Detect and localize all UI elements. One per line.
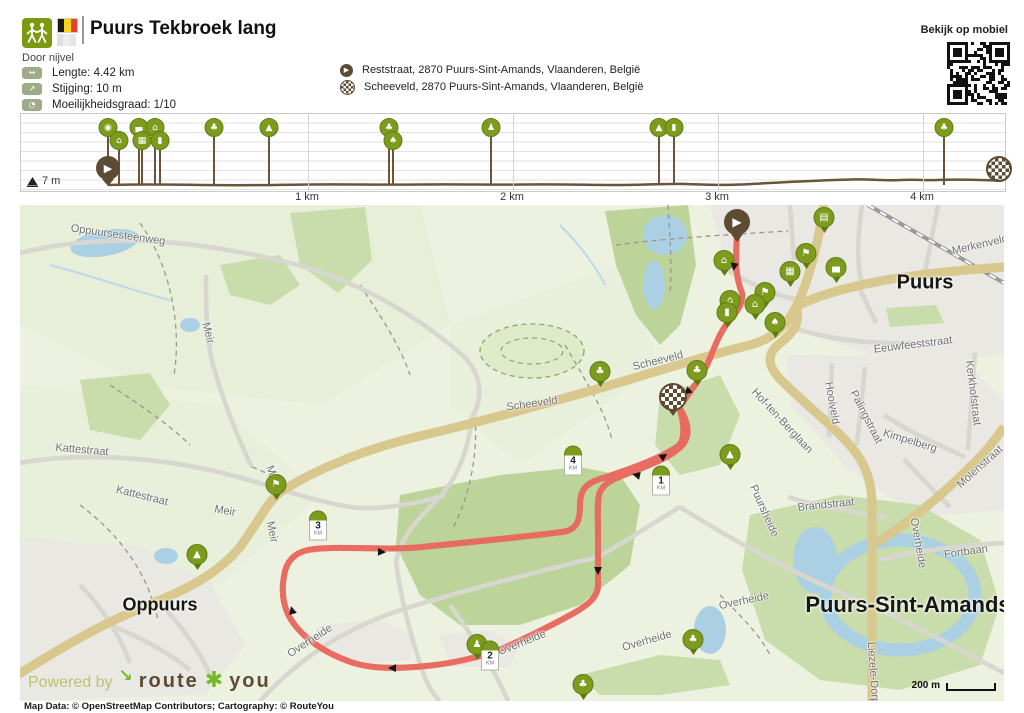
town-label: Puurs-Sint-Amands: [805, 592, 1004, 618]
km-gridline: [308, 114, 309, 191]
tree-poi-icon[interactable]: ♣: [683, 629, 704, 650]
house-icon[interactable]: ⌂: [110, 131, 129, 150]
marker-stem: [268, 133, 270, 185]
plant-icon[interactable]: ♠: [384, 131, 403, 150]
scale-label: 200 m: [912, 680, 940, 691]
brand-you: you: [229, 670, 271, 693]
qr-code: [947, 42, 1010, 105]
finish-flag-icon: [340, 80, 355, 95]
direction-arrow-icon: [594, 567, 602, 575]
hotel-poi-icon[interactable]: ▄: [826, 257, 847, 278]
direction-arrow-icon: [631, 470, 640, 479]
stat-row: ◔Moeilijkheidsgraad: 1/10: [22, 98, 176, 112]
direction-arrow-icon: [378, 548, 386, 556]
routeyou-watermark: Powered by ↘ route ✱ you: [28, 668, 271, 693]
waypoint-address: Reststraat, 2870 Puurs-Sint-Amands, Vlaa…: [362, 64, 640, 76]
racetrack-oval: [480, 324, 584, 378]
waypoint-row: ▶Reststraat, 2870 Puurs-Sint-Amands, Vla…: [340, 63, 640, 77]
flag-poi-icon[interactable]: ⚑: [266, 474, 287, 495]
town-label: Puurs: [897, 272, 954, 295]
axis-tick-label: 1 km: [295, 191, 319, 203]
ascent-icon: ↗: [22, 83, 42, 95]
km-marker-1[interactable]: 1KM: [652, 466, 670, 496]
belgium-flag-icon: [57, 18, 78, 33]
marker-stem: [673, 133, 675, 185]
route-map[interactable]: OppuursesteenwegMeirKattestraatKattestra…: [20, 205, 1004, 701]
marker-stem: [213, 133, 215, 185]
flag-poi-icon[interactable]: ⚑: [796, 243, 817, 264]
stat-label: Moeilijkheidsgraad: 1/10: [52, 99, 176, 111]
bench-poi-icon[interactable]: ▤: [814, 207, 835, 228]
km-gridline: [718, 114, 719, 191]
stat-label: Stijging: 10 m: [52, 83, 122, 95]
stat-row: ↔Lengte: 4.42 km: [22, 66, 134, 80]
tree-icon[interactable]: ♣: [205, 118, 224, 137]
hill-poi-icon[interactable]: ▲: [720, 444, 741, 465]
start-point-icon: ▶: [340, 64, 353, 77]
waypoint-row: Scheeveld, 2870 Puurs-Sint-Amands, Vlaan…: [340, 80, 643, 94]
stat-label: Lengte: 4.42 km: [52, 67, 134, 79]
plant-poi-icon[interactable]: ♠: [765, 312, 786, 333]
hill-icon[interactable]: ▲: [260, 118, 279, 137]
km-unit: KM: [482, 662, 498, 668]
marker-stem: [141, 146, 143, 185]
watermark-arrow-icon: ↘: [119, 666, 133, 686]
marker-stem: [490, 133, 492, 185]
km-gridline: [923, 114, 924, 191]
marker-stem: [943, 133, 945, 185]
route-author: Door nijvel: [22, 52, 74, 64]
km-unit: KM: [565, 467, 581, 473]
axis-tick-label: 4 km: [910, 191, 934, 203]
direction-arrow-icon: [729, 262, 738, 271]
town-label: Oppuurs: [123, 595, 198, 616]
direction-arrow-icon: [388, 664, 396, 672]
hill-poi-icon[interactable]: ▲: [187, 544, 208, 565]
map-scale: 200 m: [912, 680, 996, 691]
tree-poi-icon[interactable]: ♣: [590, 361, 611, 382]
hikers-icon: [22, 18, 52, 48]
tree-icon[interactable]: ♣: [935, 118, 954, 137]
map-finish-marker[interactable]: [659, 383, 687, 411]
marker-stem: [159, 146, 161, 185]
elevation-profile[interactable]: ◉⌂▄▦⌂▮♣▲♣♠♟▲▮♣ ▶ 7 m: [20, 113, 1006, 192]
house-poi-icon[interactable]: ⌂: [745, 294, 766, 315]
monument-icon[interactable]: ▮: [151, 131, 170, 150]
stat-row: ↗Stijging: 10 m: [22, 82, 122, 96]
monument-icon[interactable]: ▮: [665, 118, 684, 137]
km-unit: KM: [653, 487, 669, 493]
powered-by-label: Powered by: [28, 674, 113, 692]
waypoint-address: Scheeveld, 2870 Puurs-Sint-Amands, Vlaan…: [364, 81, 643, 93]
difficulty-icon: ◔: [22, 99, 42, 111]
header: Puurs Tekbroek lang Door nijvel ↔Lengte:…: [0, 0, 1024, 112]
axis-tick-label: 2 km: [500, 191, 524, 203]
routeyou-route-page: Puurs Tekbroek lang Door nijvel ↔Lengte:…: [0, 0, 1024, 713]
museum-poi-icon[interactable]: ▦: [780, 261, 801, 282]
elevation-triangle-icon: [27, 176, 38, 187]
view-on-mobile-label: Bekijk op mobiel: [921, 24, 1008, 36]
km-gridline: [513, 114, 514, 191]
attribution-bar: Map Data: © OpenStreetMap Contributors; …: [0, 701, 1024, 713]
axis-tick-label: 3 km: [705, 191, 729, 203]
marker-stem: [392, 146, 394, 185]
scale-bar: [946, 683, 996, 691]
map-canvas: [20, 205, 1004, 701]
km-marker-2[interactable]: 2KM: [481, 641, 499, 671]
profile-finish-marker[interactable]: [986, 156, 1012, 182]
tree-poi-icon[interactable]: ♣: [573, 674, 594, 695]
km-marker-3[interactable]: 3KM: [309, 511, 327, 541]
title-divider: [82, 16, 84, 44]
route-title: Puurs Tekbroek lang: [90, 18, 277, 40]
km-unit: KM: [310, 532, 326, 538]
profile-axis-ticks: 1 km2 km3 km4 km: [20, 191, 1004, 205]
distance-icon: ↔: [22, 67, 42, 79]
elevation-line: [108, 179, 999, 185]
hiking-activity-icon: [22, 18, 52, 48]
tree-poi-icon[interactable]: ♣: [687, 360, 708, 381]
brand-star-icon: ✱: [205, 668, 223, 693]
monument-poi-icon[interactable]: ▮: [717, 302, 738, 323]
brand-route: route: [139, 670, 199, 693]
min-elevation-label: 7 m: [27, 175, 60, 187]
profile-start-marker[interactable]: ▶: [96, 156, 120, 180]
faded-flag-icon: [57, 34, 76, 46]
marker-stem: [658, 133, 660, 185]
map-start-marker[interactable]: ▶: [724, 209, 750, 235]
statue-icon[interactable]: ♟: [482, 118, 501, 137]
km-marker-4[interactable]: 4KM: [564, 446, 582, 476]
map-attribution: Map Data: © OpenStreetMap Contributors; …: [24, 701, 334, 712]
